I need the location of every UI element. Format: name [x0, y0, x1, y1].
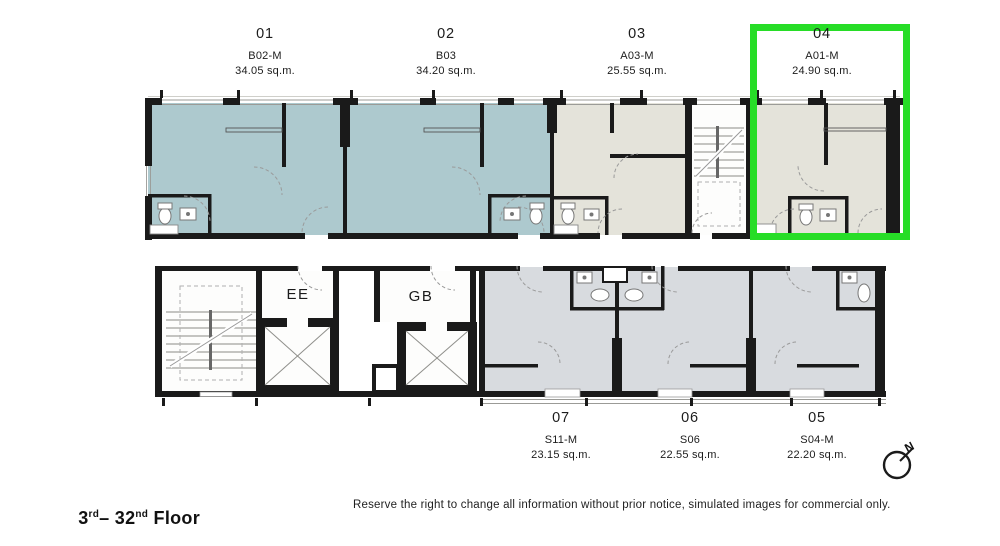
disclaimer-text: Reserve the right to change all informat… [353, 499, 890, 511]
floor-base: 3 [78, 508, 88, 528]
unit-02-label: 02 B03 34.20 sq.m. [376, 26, 516, 78]
unit-07-floor[interactable] [483, 267, 617, 393]
floor-base-ordinal: rd [89, 509, 100, 520]
toilet-icon [562, 208, 574, 224]
unit-type-code: A03-M [567, 49, 707, 64]
unit-number: 05 [747, 410, 887, 426]
unit-04-label: 04 A01-M 24.90 sq.m. [752, 26, 892, 78]
floor-range-label: 3rd– 32nd Floor [57, 487, 200, 546]
toilet-icon [625, 289, 643, 301]
floor-separator: – [99, 508, 115, 528]
unit-area: 25.55 sq.m. [567, 64, 707, 79]
floor-top: 32 [115, 508, 136, 528]
unit-01-floor[interactable] [148, 103, 345, 235]
unit-06-floor[interactable] [617, 267, 751, 393]
elevator-door [426, 322, 447, 331]
floor-plan-page: 01 B02-M 34.05 sq.m. 02 B03 34.20 sq.m. … [0, 0, 1000, 546]
unit-type-code: S04-M [747, 433, 887, 448]
floor-word: Floor [148, 508, 200, 528]
unit-type-code: B03 [376, 49, 516, 64]
elevator-gb-label: GB [409, 288, 434, 305]
unit-01-label: 01 B02-M 34.05 sq.m. [195, 26, 335, 78]
unit-number: 04 [752, 26, 892, 42]
unit-number: 06 [620, 410, 760, 426]
unit-02-floor[interactable] [345, 103, 552, 235]
elevator-core-gb [372, 266, 477, 394]
unit-07-label: 07 S11-M 23.15 sq.m. [491, 410, 631, 462]
unit-number: 03 [567, 26, 707, 42]
toilet-icon [530, 208, 542, 224]
elevator-door [287, 318, 308, 327]
unit-type-code: S11-M [491, 433, 631, 448]
toilet-icon [858, 284, 870, 302]
toilet-icon [159, 208, 171, 224]
unit-number: 07 [491, 410, 631, 426]
elevator-ee-label: EE [286, 286, 309, 303]
unit-area: 34.20 sq.m. [376, 64, 516, 79]
unit-06-label: 06 S06 22.55 sq.m. [620, 410, 760, 462]
unit-area: 22.55 sq.m. [620, 448, 760, 463]
unit-type-code: A01-M [752, 49, 892, 64]
unit-number: 02 [376, 26, 516, 42]
toilet-icon [591, 289, 609, 301]
unit-area: 34.05 sq.m. [195, 64, 335, 79]
floor-top-ordinal: nd [135, 509, 148, 520]
unit-03-label: 03 A03-M 25.55 sq.m. [567, 26, 707, 78]
unit-area: 24.90 sq.m. [752, 64, 892, 79]
unit-type-code: B02-M [195, 49, 335, 64]
unit-area: 23.15 sq.m. [491, 448, 631, 463]
unit-05-label: 05 S04-M 22.20 sq.m. [747, 410, 887, 462]
unit-area: 22.20 sq.m. [747, 448, 887, 463]
unit-type-code: S06 [620, 433, 760, 448]
stair-window [200, 392, 232, 397]
unit-number: 01 [195, 26, 335, 42]
